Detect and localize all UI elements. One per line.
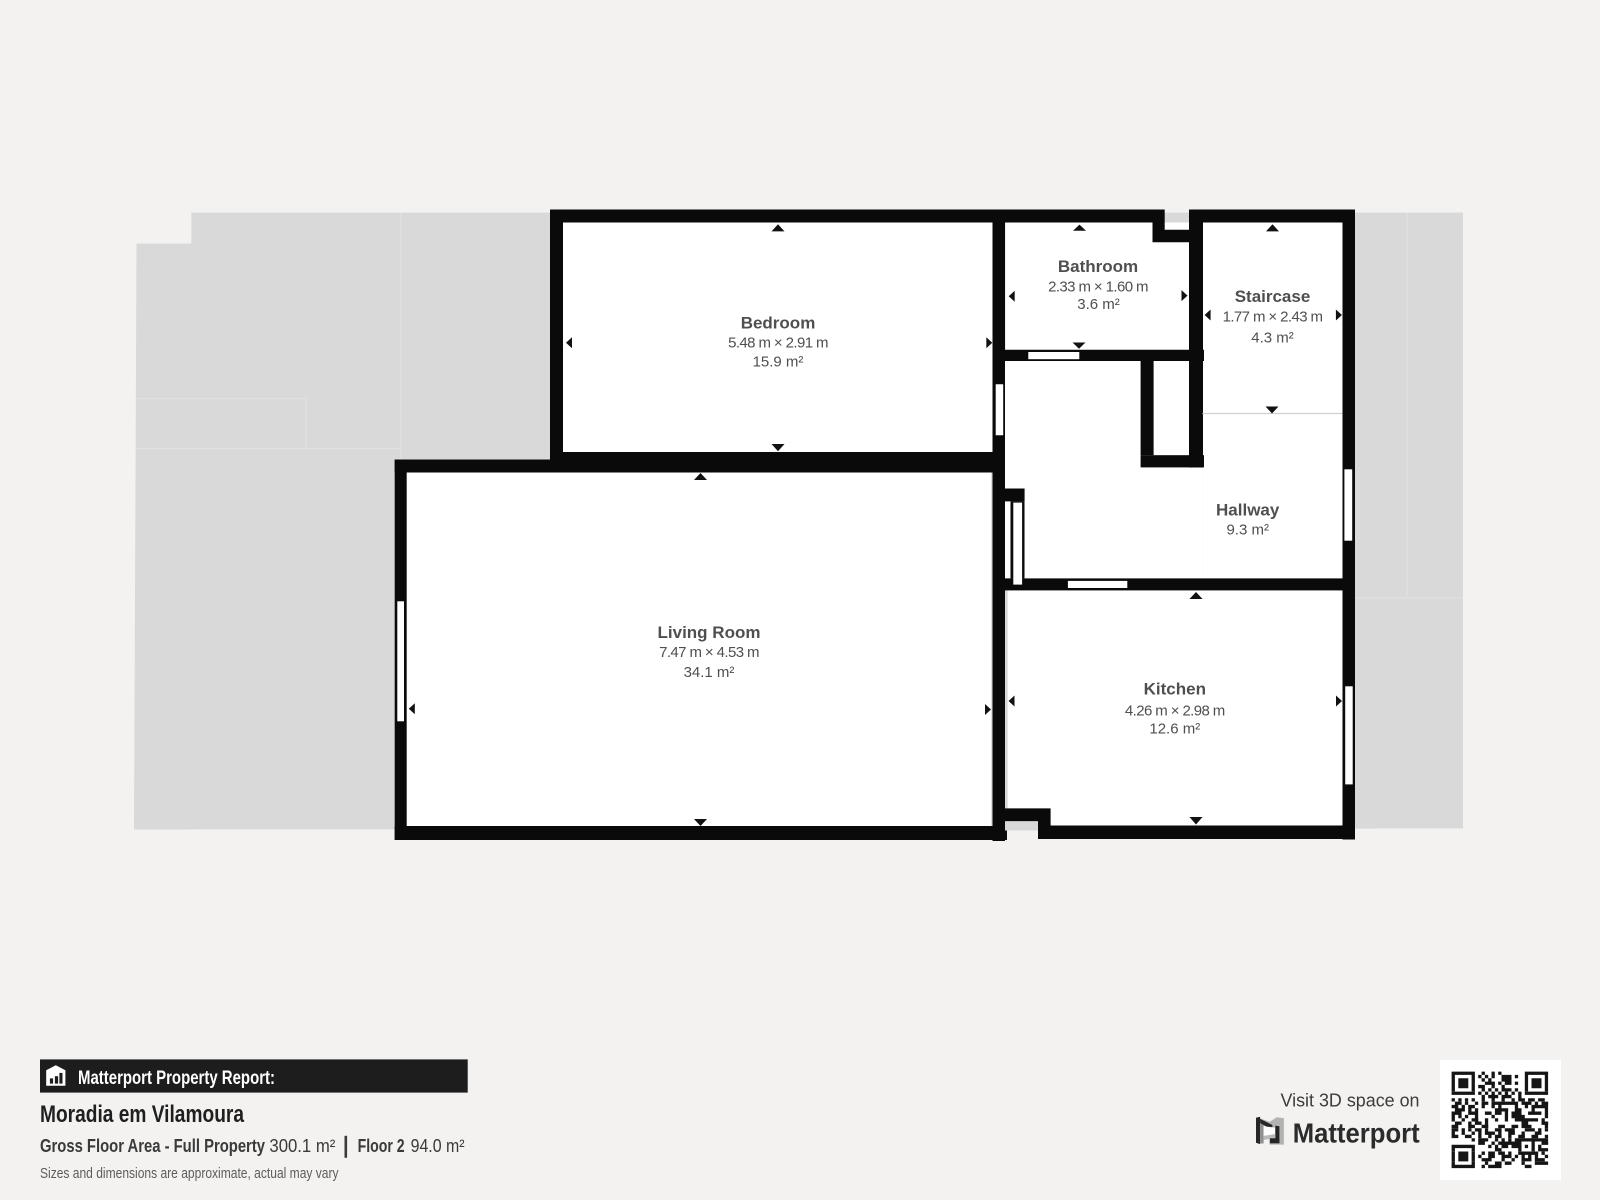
svg-text:Gross Floor Area - Full Proper: Gross Floor Area - Full Property — [40, 1136, 265, 1156]
svg-text:9.3 m²: 9.3 m² — [1226, 522, 1269, 539]
svg-text:Kitchen: Kitchen — [1144, 680, 1206, 699]
svg-text:4.3 m²: 4.3 m² — [1251, 329, 1294, 346]
svg-text:34.1 m²: 34.1 m² — [684, 664, 735, 681]
svg-text:1.77 m × 2.43 m: 1.77 m × 2.43 m — [1223, 308, 1323, 325]
svg-text:3.6 m²: 3.6 m² — [1077, 296, 1120, 313]
svg-text:Bathroom: Bathroom — [1058, 257, 1138, 276]
svg-text:Bedroom: Bedroom — [741, 313, 816, 332]
svg-text:12.6 m²: 12.6 m² — [1149, 720, 1200, 737]
svg-text:15.9 m²: 15.9 m² — [753, 353, 804, 370]
svg-text:94.0 m²: 94.0 m² — [411, 1136, 465, 1156]
svg-text:Sizes and dimensions are appro: Sizes and dimensions are approximate, ac… — [40, 1165, 339, 1182]
svg-text:Staircase: Staircase — [1235, 287, 1311, 306]
svg-text:5.48 m × 2.91 m: 5.48 m × 2.91 m — [728, 334, 828, 351]
svg-text:300.1 m²: 300.1 m² — [269, 1136, 335, 1156]
svg-text:Floor 2: Floor 2 — [358, 1136, 405, 1156]
svg-text:Matterport: Matterport — [1293, 1118, 1420, 1149]
svg-text:Moradia em Vilamoura: Moradia em Vilamoura — [40, 1101, 245, 1128]
svg-text:Matterport Property Report:: Matterport Property Report: — [78, 1068, 275, 1089]
svg-text:4.26 m × 2.98 m: 4.26 m × 2.98 m — [1125, 702, 1225, 719]
svg-text:Hallway: Hallway — [1216, 501, 1280, 520]
svg-text:Living Room: Living Room — [658, 623, 761, 642]
svg-text:Visit 3D space on: Visit 3D space on — [1281, 1091, 1420, 1111]
svg-text:7.47 m × 4.53 m: 7.47 m × 4.53 m — [659, 644, 759, 661]
svg-text:2.33 m × 1.60 m: 2.33 m × 1.60 m — [1048, 278, 1148, 295]
